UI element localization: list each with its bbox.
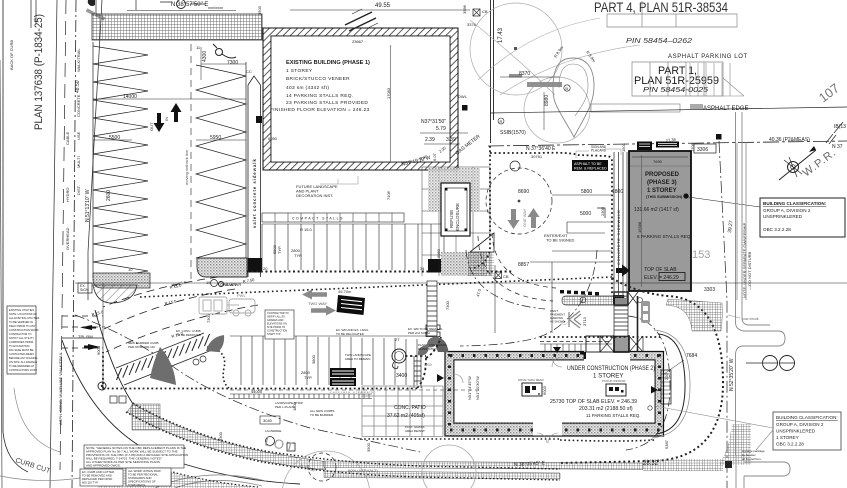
svg-text:TO BE SIGNED: TO BE SIGNED — [546, 238, 574, 243]
svg-text:LAUNDREE: LAUNDREE — [265, 429, 281, 433]
svg-text:SSIB(1570): SSIB(1570) — [500, 130, 526, 136]
svg-text:IB(13: IB(13 — [834, 124, 846, 130]
svg-text:CONTRACTORS COST.: CONTRACTORS COST. — [9, 368, 38, 372]
svg-text:2600: 2600 — [106, 190, 112, 201]
svg-text:NOTIFY ALL UTILITY: NOTIFY ALL UTILITY — [9, 336, 34, 340]
svg-text:203.31 m2 (2188.50 sf): 203.31 m2 (2188.50 sf) — [579, 406, 633, 412]
svg-text:PIN 58454-0025: PIN 58454-0025 — [643, 85, 709, 94]
svg-text:7690: 7690 — [653, 159, 663, 164]
svg-text:28.32: 28.32 — [643, 461, 659, 467]
svg-text:N 37: N 37 — [832, 144, 843, 150]
svg-text:1706: 1706 — [690, 142, 695, 152]
svg-text:49.55: 49.55 — [375, 3, 391, 9]
svg-text:PLACARD: PLACARD — [591, 149, 607, 153]
svg-text:EXISTING BUILDING (PHASE 1): EXISTING BUILDING (PHASE 1) — [286, 60, 370, 66]
svg-text:N51°14'45"W: N51°14'45"W — [467, 376, 472, 400]
svg-text:131.66 m2 (1417 sf): 131.66 m2 (1417 sf) — [634, 207, 679, 213]
svg-text:14 PARKING STALLS REQ.: 14 PARKING STALLS REQ. — [286, 93, 354, 99]
svg-text:23667: 23667 — [352, 39, 364, 44]
svg-text:TYP.: TYP. — [304, 375, 312, 380]
svg-text:5.79: 5.79 — [436, 126, 446, 132]
svg-text:ON SITE. ALL DAMAGE: ON SITE. ALL DAMAGE — [9, 360, 37, 364]
svg-text:60% (ASPHALT): 60% (ASPHALT) — [348, 468, 378, 473]
svg-text:1800: 1800 — [612, 189, 623, 195]
svg-text:5387: 5387 — [664, 439, 669, 449]
svg-text:OUT: OUT — [149, 122, 154, 131]
svg-text:MULTI: MULTI — [76, 156, 81, 168]
svg-text:—DO NOT DISTURB: —DO NOT DISTURB — [747, 252, 752, 290]
svg-text:7684: 7684 — [686, 353, 697, 359]
svg-text:5950: 5950 — [210, 135, 221, 141]
svg-text:xxx/xxxx: xxx/xxxx — [208, 5, 223, 10]
svg-text:UNSPRINKLERED: UNSPRINKLERED — [776, 429, 816, 434]
svg-text:CONTRACTOR TO: CONTRACTOR TO — [9, 332, 31, 336]
svg-text:3000: 3000 — [424, 363, 432, 367]
svg-text:7300: 7300 — [227, 60, 238, 66]
svg-text:USE: USE — [76, 131, 81, 140]
svg-text:CONTACTED 48HRS: CONTACTED 48HRS — [9, 352, 34, 356]
svg-text:valet concrete sidewalk: valet concrete sidewalk — [252, 158, 257, 228]
svg-text:PLAN 137638 (P-1834-25): PLAN 137638 (P-1834-25) — [33, 14, 45, 130]
svg-text:TO EXCAVATION.: TO EXCAVATION. — [9, 344, 30, 348]
svg-text:ASPHALT EDGE: ASPHALT EDGE — [703, 106, 748, 112]
svg-text:TYP.: TYP. — [277, 246, 282, 254]
svg-text:PWL: PWL — [237, 293, 246, 298]
svg-text:BACK OF CURB: BACK OF CURB — [9, 40, 14, 70]
svg-text:3300: 3300 — [218, 431, 223, 441]
svg-text:IN: IN — [164, 117, 169, 121]
svg-text:TO BE REPAIRED AT: TO BE REPAIRED AT — [9, 364, 35, 368]
svg-text:CABLE: CABLE — [65, 132, 70, 145]
svg-text:600.110 TYP.: 600.110 TYP. — [82, 481, 99, 485]
svg-text:PER L-PLANS: PER L-PLANS — [275, 405, 295, 409]
svg-text:8370: 8370 — [519, 71, 530, 77]
svg-text:7300: 7300 — [206, 313, 211, 323]
svg-text:3303: 3303 — [704, 287, 715, 293]
svg-text:START TYP.: START TYP. — [267, 333, 281, 336]
svg-text:17.43: 17.43 — [498, 27, 504, 43]
svg-text:PROPOSED: PROPOSED — [645, 172, 680, 178]
svg-text:BUILDING CLASSIFICATION:: BUILDING CLASSIFICATION: — [776, 415, 838, 420]
svg-text:5800: 5800 — [581, 189, 592, 195]
svg-text:PER 2nd SUBM.: PER 2nd SUBM. — [408, 331, 431, 335]
svg-text:concrete sidewalk: concrete sidewalk — [330, 390, 374, 394]
svg-text:BEFORE ANY DIGGING: BEFORE ANY DIGGING — [9, 356, 38, 360]
svg-text:ONE WAY: ONE WAY — [522, 208, 527, 227]
svg-text:17083: 17083 — [386, 87, 391, 99]
svg-text:ASPHALT PARKING LOT: ASPHALT PARKING LOT — [668, 54, 748, 60]
svg-text:48.50: 48.50 — [75, 80, 81, 93]
svg-text:(THIS SUBMISSION): (THIS SUBMISSION) — [646, 195, 683, 199]
svg-text:N 37°36'40 E: N 37°36'40 E — [526, 146, 556, 152]
svg-text:GROUP A, DIVISION 2: GROUP A, DIVISION 2 — [763, 208, 811, 213]
svg-text:R 15.0: R 15.0 — [300, 227, 313, 232]
svg-text:CONSTRUCTION WORK: CONSTRUCTION WORK — [9, 328, 39, 332]
svg-text:GROUP A, DIVISION 2: GROUP A, DIVISION 2 — [776, 422, 824, 427]
svg-text:3586: 3586 — [462, 4, 467, 14]
svg-text:AREA REINST.: AREA REINST. — [405, 429, 426, 433]
svg-text:N 38°57'50" E: N 38°57'50" E — [171, 2, 208, 8]
svg-text:16588: 16588 — [637, 221, 642, 233]
svg-text:UNDER CONSTRUCTION (PHASE 2): UNDER CONSTRUCTION (PHASE 2) — [567, 366, 655, 372]
svg-text:ALL EXISTING UTILITIES: ALL EXISTING UTILITIES — [9, 316, 39, 320]
svg-text:AS SHOWN: AS SHOWN — [550, 320, 565, 324]
svg-text:CB: CB — [503, 274, 509, 279]
svg-text:3040: 3040 — [263, 418, 273, 423]
svg-text:NOTE: LOCATIONS OF: NOTE: LOCATIONS OF — [9, 312, 37, 316]
svg-text:5500: 5500 — [109, 135, 120, 141]
svg-text:AREA TO REMAIN: AREA TO REMAIN — [345, 357, 370, 361]
svg-text:TO BE BARRIER: TO BE BARRIER — [310, 413, 334, 417]
svg-text:REFUSE: REFUSE — [449, 210, 454, 228]
svg-text:PIN 58454–0262: PIN 58454–0262 — [626, 36, 693, 45]
svg-text:ENCLOSURE: ENCLOSURE — [455, 203, 460, 231]
svg-text:WALK\TRAIL: WALK\TRAIL — [76, 48, 81, 72]
svg-text:OBC 3.2.2.28: OBC 3.2.2.28 — [776, 442, 804, 447]
svg-text:N51°10'30"W: N51°10'30"W — [475, 376, 480, 400]
svg-text:BRICK/STUCCO VENEER: BRICK/STUCCO VENEER — [286, 76, 350, 82]
svg-text:CONCRETE SIDEWALK: CONCRETE SIDEWALK — [617, 210, 621, 265]
svg-text:8980: 8980 — [544, 95, 550, 106]
svg-text:moving setback line: moving setback line — [184, 149, 189, 185]
svg-text:ASPHALT TO BE: ASPHALT TO BE — [574, 162, 602, 166]
svg-text:1501: 1501 — [621, 142, 626, 152]
svg-text:PER OPSD 600.110: PER OPSD 600.110 — [128, 345, 155, 349]
svg-text:N37°31'50": N37°31'50" — [421, 119, 446, 125]
svg-text:34: 34 — [420, 266, 425, 271]
svg-text:1 STOREY: 1 STOREY — [647, 188, 677, 194]
svg-text:(PHASE 3): (PHASE 3) — [647, 180, 677, 186]
svg-text:1 STOREY: 1 STOREY — [286, 68, 313, 74]
svg-text:PART 4, PLAN 51R-38534: PART 4, PLAN 51R-38534 — [594, 0, 728, 15]
svg-text:CONC. PATIO: CONC. PATIO — [394, 405, 426, 411]
svg-text:1 STOREY: 1 STOREY — [776, 435, 799, 440]
svg-text:10: 10 — [128, 267, 133, 272]
svg-text:6003: 6003 — [542, 385, 547, 395]
svg-text:2050: 2050 — [436, 248, 441, 258]
svg-text:30761: 30761 — [531, 154, 543, 159]
svg-text:7300: 7300 — [445, 300, 450, 310]
svg-text:REINSTATED: REINSTATED — [418, 347, 437, 351]
svg-text:OVERHEAD: OVERHEAD — [65, 227, 70, 250]
svg-text:TO BE RELOCATED: TO BE RELOCATED — [336, 332, 365, 336]
svg-text:TOWN REQS.: TOWN REQS. — [128, 483, 146, 487]
svg-text:HYDRO: HYDRO — [65, 188, 70, 202]
svg-text:COMPANIES PRIOR: COMPANIES PRIOR — [9, 340, 33, 344]
svg-text:3500: 3500 — [366, 442, 371, 452]
svg-text:DECORATION INST.: DECORATION INST. — [296, 193, 333, 198]
svg-text:23 PARKING STALLS PROVIDED: 23 PARKING STALLS PROVIDED — [286, 100, 368, 106]
svg-text:37.62 m2 (405sf): 37.62 m2 (405sf) — [387, 413, 425, 419]
svg-text:3.39: 3.39 — [446, 137, 456, 143]
svg-text:TWO WAY: TWO WAY — [308, 301, 327, 306]
svg-text:TYP.: TYP. — [294, 253, 302, 258]
svg-text:pow circuit: pow circuit — [742, 317, 759, 321]
svg-text:BUILDING CLASSIFICATION:: BUILDING CLASSIFICATION: — [763, 201, 827, 206]
svg-text:6050: 6050 — [268, 136, 278, 141]
svg-text:3503: 3503 — [257, 5, 262, 15]
svg-text:27: 27 — [395, 337, 400, 342]
svg-text:14000: 14000 — [123, 94, 137, 100]
svg-text:TO BE REMOVED: TO BE REMOVED — [176, 333, 202, 337]
svg-text:TO BE VERIFIED IN: TO BE VERIFIED IN — [9, 320, 33, 324]
svg-text:DRIVE THRU MENU: DRIVE THRU MENU — [518, 378, 544, 382]
svg-text:EXISTING UTILITIES: EXISTING UTILITIES — [9, 308, 34, 312]
svg-text:153: 153 — [692, 249, 710, 261]
svg-text:CC: CC — [246, 69, 252, 74]
svg-text:PICKUP WINDOW: PICKUP WINDOW — [602, 379, 626, 383]
svg-text:3800: 3800 — [311, 354, 316, 364]
svg-text:45.70m: 45.70m — [338, 289, 352, 294]
svg-text:N 52°35'20" W: N 52°35'20" W — [729, 358, 735, 391]
svg-text:7106: 7106 — [386, 190, 391, 200]
svg-text:20: 20 — [263, 266, 268, 271]
svg-text:3713: 3713 — [582, 316, 587, 326]
svg-text:4300: 4300 — [202, 51, 208, 62]
svg-text:25730 TOP OF SLAB ELEV. = 2: 25730 TOP OF SLAB ELEV. = 246.39 — [550, 399, 637, 405]
svg-text:COMPACT STALLS: COMPACT STALLS — [292, 217, 344, 221]
svg-text:8857: 8857 — [518, 262, 529, 268]
svg-text:FINISHED FLOOR ELEVATION = 246: FINISHED FLOOR ELEVATION = 246.23 — [270, 107, 369, 113]
svg-text:all future/Com.: all future/Com. — [742, 457, 762, 461]
svg-text:44000: 44000 — [251, 389, 263, 394]
svg-text:REM. & REPLACED: REM. & REPLACED — [574, 167, 607, 171]
svg-text:DIST.: DIST. — [76, 185, 81, 195]
svg-text:DWL: DWL — [458, 94, 468, 99]
svg-text:ASPH. CONC. MULTI USE WALK/TRA: ASPH. CONC. MULTI USE WALK/TRAIL — [58, 351, 63, 425]
svg-text:B: B — [565, 86, 568, 91]
svg-text:8690: 8690 — [518, 189, 529, 195]
svg-text:403 sm (4342 sft): 403 sm (4342 sft) — [286, 85, 329, 91]
svg-text:9000: 9000 — [96, 345, 101, 355]
svg-text:6.07: 6.07 — [432, 152, 437, 161]
svg-text:3306: 3306 — [697, 147, 708, 153]
svg-text:DIG SAFE MUST BE: DIG SAFE MUST BE — [9, 348, 34, 352]
svg-text:11 PARKING STALLS REQ.: 11 PARKING STALLS REQ. — [586, 413, 640, 418]
svg-text:FIELD PRIOR TO ANY: FIELD PRIOR TO ANY — [9, 324, 36, 328]
svg-text:AND APPROVED DWGS.: AND APPROVED DWGS. — [86, 464, 121, 468]
svg-text:3400: 3400 — [396, 373, 407, 379]
svg-text:OBC 3.2.2.28: OBC 3.2.2.28 — [763, 227, 791, 232]
svg-text:UNSPRINKLERED: UNSPRINKLERED — [763, 214, 803, 219]
svg-text:5000: 5000 — [580, 211, 591, 217]
svg-text:6 PARKING STALLS REQ.: 6 PARKING STALLS REQ. — [637, 234, 692, 239]
svg-text:SIGN: SIGN — [80, 288, 89, 292]
svg-text:2.39: 2.39 — [425, 137, 435, 143]
svg-text:CONCRETE: CONCRETE — [76, 94, 81, 117]
svg-text:R: R — [500, 119, 503, 124]
